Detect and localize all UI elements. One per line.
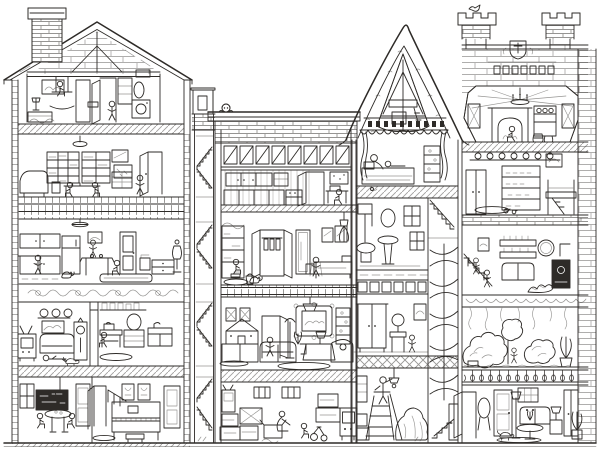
basement-storage	[220, 385, 357, 443]
bedroom	[222, 212, 352, 285]
sofa	[40, 334, 74, 353]
bush	[463, 332, 507, 368]
big-tv	[340, 408, 357, 440]
bird	[469, 5, 480, 11]
parlor	[220, 297, 353, 370]
bed	[314, 256, 352, 278]
floor-lamp	[511, 392, 521, 438]
dollhouse-illustration	[0, 0, 600, 451]
canopy-bed	[362, 155, 414, 184]
chaise	[20, 171, 48, 197]
old-tv	[222, 385, 235, 412]
quoin-strip	[578, 49, 596, 443]
frieze-band	[19, 284, 184, 302]
stove	[552, 244, 570, 288]
pantry	[466, 153, 576, 214]
right-battlement-chimney	[542, 13, 580, 49]
left-battlement-chimney	[458, 5, 496, 49]
vanity-dresser	[124, 314, 144, 347]
clerestory-windows	[221, 146, 351, 170]
spiral-staircase	[428, 140, 462, 443]
left-wall-masonry	[12, 80, 18, 443]
stepladder	[366, 392, 402, 440]
round-table	[45, 410, 71, 418]
table-lamp	[550, 407, 562, 434]
castle-parlor	[464, 236, 570, 293]
dressing-room	[354, 304, 428, 352]
bookshelf	[47, 152, 79, 183]
brick-chimney	[28, 8, 66, 62]
scallop-band	[462, 295, 588, 307]
tree	[502, 319, 523, 364]
kitchen-office	[221, 170, 348, 206]
canopy-bedroom	[360, 130, 448, 191]
library-study	[20, 136, 162, 197]
conservatory	[463, 308, 572, 368]
great-hall	[464, 86, 578, 142]
dollhouse-canvas	[0, 0, 600, 451]
toy-dollhouse	[222, 319, 258, 362]
peeking-figure	[219, 104, 233, 112]
small-sofa	[520, 407, 550, 424]
balustrade	[462, 367, 588, 385]
icebox	[62, 236, 80, 274]
window-band	[356, 270, 428, 294]
toilet	[357, 204, 375, 262]
right-wall-masonry	[184, 130, 190, 443]
middle-house	[208, 104, 360, 443]
tricycle	[311, 427, 328, 441]
potted-plant	[560, 337, 572, 367]
person-lying	[43, 355, 66, 362]
sitting-room	[454, 388, 582, 443]
vanity	[390, 314, 406, 352]
oval-mirror	[478, 398, 490, 430]
stair-banister	[108, 390, 126, 406]
bathroom	[357, 204, 424, 266]
tower	[339, 25, 469, 443]
wash-stand	[148, 323, 172, 347]
pedestal-sink	[378, 236, 398, 264]
workshop	[357, 368, 428, 440]
full-length-mirror	[296, 230, 310, 274]
couch	[260, 342, 296, 362]
settee	[502, 263, 534, 280]
loft-bed	[546, 180, 576, 214]
ornate-frame	[294, 303, 334, 340]
living-sewing-room	[18, 302, 172, 366]
stair-flights	[197, 147, 212, 430]
piano-bench	[126, 434, 144, 439]
television	[18, 326, 36, 361]
stair-tower	[191, 88, 215, 443]
castle	[454, 5, 596, 443]
open-wardrobe	[252, 230, 292, 278]
left-house	[4, 8, 192, 447]
kneeling-figure	[277, 411, 290, 431]
tall-case-clock	[74, 318, 87, 360]
figure-on-ladder	[375, 377, 392, 404]
dining-table	[80, 258, 114, 275]
wardrobe	[356, 304, 388, 352]
kitchen-dining-room	[18, 219, 182, 282]
classroom-music-room	[20, 377, 180, 443]
steep-roof	[339, 25, 469, 145]
